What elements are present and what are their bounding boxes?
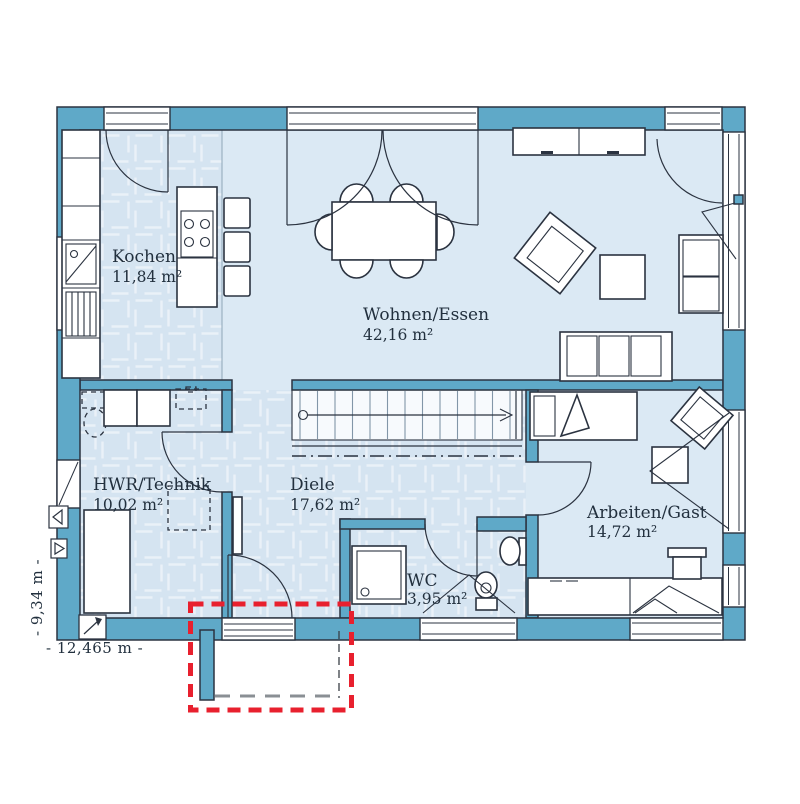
dryer	[137, 390, 170, 426]
living-top-window	[665, 107, 722, 130]
window-handle	[734, 195, 743, 204]
wall-wc-top	[340, 519, 425, 529]
washing-machine	[104, 390, 137, 426]
room-area-wc: 3,95 m²	[407, 590, 467, 608]
house-connection-symbol	[79, 615, 106, 639]
room-label-kochen: Kochen	[112, 247, 176, 267]
vent-symbol-exhaust	[51, 539, 67, 558]
room-area-arbeiten-gast: 14,72 m²	[587, 523, 657, 541]
living-side-terrace-door	[723, 132, 745, 330]
room-area-diele: 17,62 m²	[290, 496, 360, 514]
floor-plan-svg: Kochen 11,84 m² Wohnen/Essen 42,16 m² HW…	[0, 0, 800, 800]
wardrobe-strip	[233, 497, 242, 554]
bar-stool	[224, 266, 250, 296]
wall-wc-top-stub	[477, 517, 526, 531]
wall-hwr-upper	[222, 390, 232, 432]
french-doors-window	[287, 107, 478, 130]
room-label-diele: Diele	[290, 475, 335, 495]
bar-stool	[224, 232, 250, 262]
sideboard	[513, 128, 645, 155]
wc-window	[420, 618, 517, 640]
arbeiten-side-window-2	[723, 565, 745, 607]
arbeiten-side-window	[723, 410, 745, 533]
sofa-3-seat	[560, 332, 672, 381]
room-label-arbeiten-gast: Arbeiten/Gast	[586, 503, 707, 523]
room-area-kochen: 11,84 m²	[112, 268, 182, 286]
office-chair	[668, 548, 706, 579]
entrance-wall-stub	[200, 630, 214, 700]
arbeiten-bottom-window	[630, 618, 723, 640]
room-label-wohnen-essen: Wohnen/Essen	[363, 305, 489, 325]
room-area-hwr-technik: 10,02 m²	[93, 496, 163, 514]
heat-pump-unit	[84, 510, 130, 613]
dimension-width: - 12,465 m -	[46, 639, 143, 657]
entrance-door-sill	[222, 618, 295, 640]
hwr-side-window	[57, 460, 80, 508]
staircase	[292, 390, 524, 456]
vent-symbol-supply	[49, 506, 68, 528]
coffee-table	[600, 255, 645, 299]
room-label-wc: WC	[407, 571, 437, 591]
room-label-hwr-technik: HWR/Technik	[93, 475, 212, 495]
floor-plan-canvas: Kochen 11,84 m² Wohnen/Essen 42,16 m² HW…	[0, 0, 800, 800]
room-area-wohnen-essen: 42,16 m²	[363, 326, 433, 344]
kitchen-terrace-door-window	[104, 107, 170, 130]
wall-hall-left	[80, 380, 232, 390]
kitchen-counter	[62, 130, 100, 378]
desk	[528, 578, 722, 615]
sofa-2-seat	[679, 235, 723, 313]
toilet	[475, 572, 497, 610]
dining-table	[332, 202, 436, 260]
shower	[352, 546, 406, 604]
bar-stool	[224, 198, 250, 228]
dimension-height: - 9,34 m -	[28, 559, 46, 636]
bed	[530, 392, 637, 440]
kitchen-island	[177, 187, 217, 307]
washbasin	[500, 537, 526, 565]
